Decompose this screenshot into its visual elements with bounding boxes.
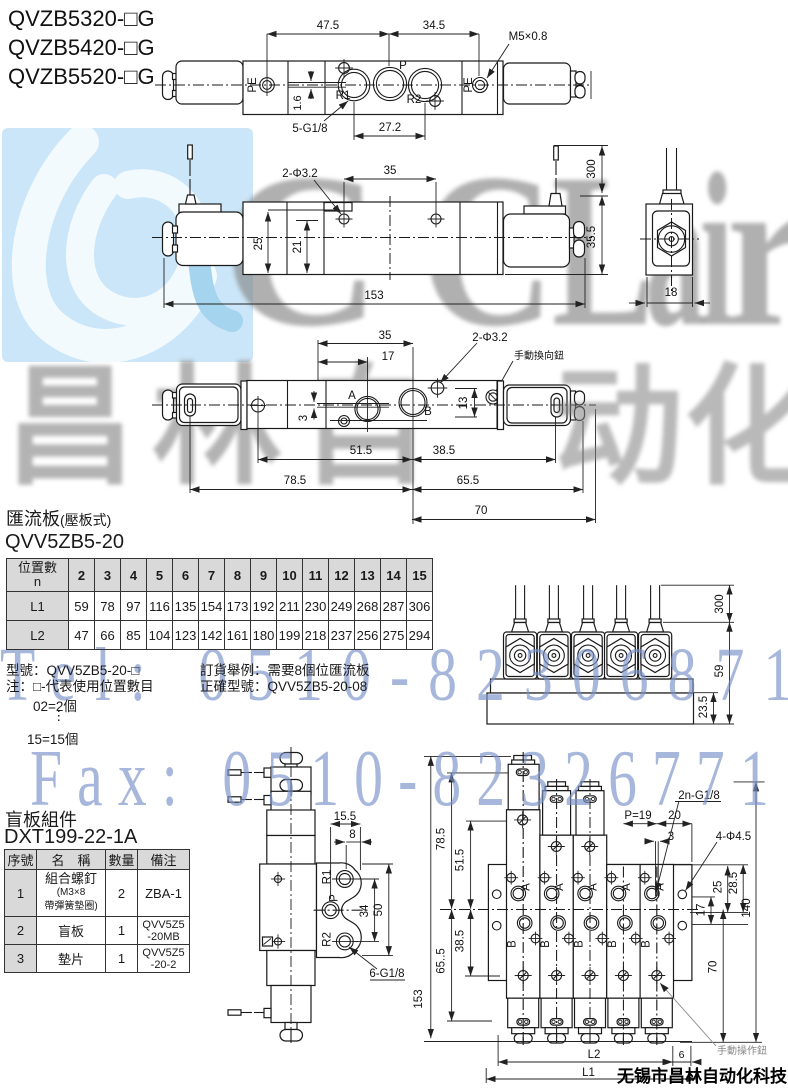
svg-text:2-Φ3.2: 2-Φ3.2 [282,168,317,180]
svg-text:R1: R1 [322,870,334,885]
svg-text:21: 21 [292,241,304,254]
svg-text:6: 6 [679,1049,685,1061]
svg-text:300: 300 [586,159,598,178]
svg-text:5-G1/8: 5-G1/8 [292,123,327,135]
svg-text:17: 17 [696,904,708,917]
svg-text:B: B [607,940,619,948]
svg-text:R2: R2 [407,94,422,106]
svg-text:50: 50 [373,904,385,917]
svg-text:M5×0.8: M5×0.8 [509,31,548,43]
svg-text:47.5: 47.5 [317,20,339,32]
svg-text:34: 34 [359,904,371,917]
svg-text:B: B [574,940,586,948]
svg-text:153: 153 [413,989,425,1008]
svg-text:25: 25 [253,238,265,251]
svg-text:手動操作鈕: 手動操作鈕 [717,1044,767,1057]
svg-text:1.6: 1.6 [292,95,304,110]
svg-text:65..5: 65..5 [436,948,448,974]
svg-text:2-Φ3.2: 2-Φ3.2 [472,332,507,344]
svg-text:35: 35 [384,165,397,177]
svg-text:P: P [399,60,407,72]
svg-text:140: 140 [741,898,753,917]
svg-text:70: 70 [708,961,720,974]
svg-text:27.2: 27.2 [379,122,401,134]
svg-text:153: 153 [364,290,383,302]
svg-text:28.5: 28.5 [728,872,740,894]
svg-text:R2: R2 [322,932,334,947]
svg-text:L2: L2 [588,1049,601,1061]
svg-text:R1: R1 [336,90,351,102]
svg-text:38.5: 38.5 [455,930,467,952]
svg-text:300: 300 [714,594,726,613]
svg-text:B: B [640,940,652,948]
svg-text:78.5: 78.5 [436,828,448,850]
svg-text:51.5: 51.5 [455,849,467,871]
svg-text:25: 25 [713,881,725,894]
svg-text:18: 18 [665,287,678,299]
svg-text:6-G1/8: 6-G1/8 [369,968,404,980]
svg-text:B: B [540,940,552,948]
svg-text:35: 35 [379,330,392,342]
svg-text:8: 8 [349,829,355,841]
svg-text:4-Φ4.5: 4-Φ4.5 [716,831,751,843]
svg-text:35.5: 35.5 [586,226,598,248]
svg-text:70: 70 [475,505,488,517]
svg-text:L1: L1 [582,1067,595,1079]
svg-text:34.5: 34.5 [423,20,445,32]
svg-text:B: B [507,940,519,948]
